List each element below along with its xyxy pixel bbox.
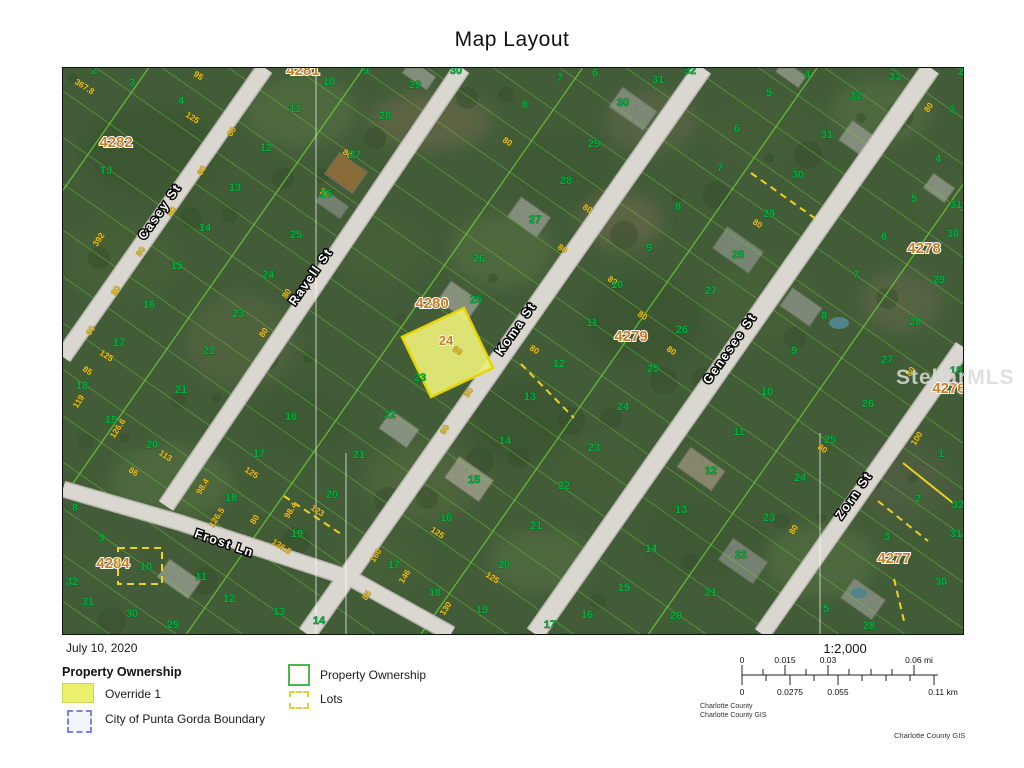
lot-number-label: 18 — [225, 492, 237, 504]
lot-number-label: 32 — [66, 576, 78, 588]
lot-number-label: 12 — [705, 465, 717, 477]
lot-number-label: 11 — [195, 571, 207, 583]
lot-number-label: 4 — [178, 95, 185, 107]
lot-number-label: 23 — [763, 512, 775, 524]
scale-km-2: 0.055 — [827, 687, 849, 697]
lot-number-label: 30 — [947, 228, 959, 240]
lot-number-label: 28 — [379, 110, 391, 122]
block-number-label: 4280 — [415, 295, 448, 312]
scale-mi-3: 0.06 mi — [905, 655, 933, 665]
lot-number-label: 23 — [414, 372, 426, 384]
lot-number-label: 17 — [253, 448, 265, 460]
lot-number-label: 27 — [705, 285, 717, 297]
lot-number-label: 25 — [470, 294, 482, 306]
lot-number-label: 11 — [289, 103, 301, 115]
lot-number-label: TJ — [100, 165, 113, 177]
lot-number-label: 15 — [468, 474, 480, 486]
lot-number-label: 8 — [72, 502, 78, 514]
ownership-swatch — [288, 664, 310, 686]
lot-number-label: 9 — [363, 68, 369, 77]
scale-km-0: 0 — [740, 687, 745, 697]
lot-number-label: 10 — [761, 386, 773, 398]
lot-number-label: 10 — [140, 561, 152, 573]
lot-number-label: 28 — [863, 620, 875, 632]
lot-number-label: 31 — [950, 199, 962, 211]
parcel-map: 42824281428042794278427642774284 24 367.… — [63, 68, 963, 634]
lot-number-label: 24 — [262, 269, 275, 281]
map-layout-page: Map Layout — [0, 0, 1024, 768]
lot-number-label: 9 — [646, 242, 652, 254]
lot-number-label: 16 — [581, 609, 593, 621]
lot-number-label: 12 — [553, 358, 565, 370]
lot-number-label: 31 — [82, 596, 94, 608]
scale-km-1: 0.0275 — [777, 687, 803, 697]
lot-number-label: 8 — [821, 310, 827, 322]
lot-number-label: 7 — [717, 162, 723, 174]
lot-number-label: 26 — [862, 398, 874, 410]
lot-number-label: 29 — [588, 138, 600, 150]
map-date: July 10, 2020 — [66, 641, 137, 655]
scale-mi-0: 0 — [740, 655, 745, 665]
legend-item-boundary: City of Punta Gorda Boundary — [105, 712, 265, 726]
lot-number-label: 16 — [143, 299, 155, 311]
lot-number-label: 8 — [522, 99, 528, 111]
lot-number-label: 18 — [76, 380, 88, 392]
lot-number-label: 23 — [232, 308, 244, 320]
lot-number-label: 17 — [113, 337, 125, 349]
lot-number-label: 16 — [440, 512, 452, 524]
lot-number-label: 4 — [935, 153, 942, 165]
scale-km-3: 0.11 km — [928, 687, 958, 697]
lot-number-label: 10 — [323, 76, 335, 88]
lot-number-label: 17 — [544, 619, 556, 631]
lot-number-label: 13 — [273, 606, 285, 618]
lot-number-label: 2 — [915, 493, 921, 505]
lot-number-label: 21 — [353, 449, 365, 461]
lot-number-label: 3 — [129, 77, 135, 89]
lot-number-label: 6 — [734, 123, 740, 135]
lot-number-label: 30 — [126, 608, 138, 620]
lot-number-label: 5 — [823, 603, 829, 615]
lot-number-label: 28 — [909, 316, 921, 328]
lot-number-label: 7 — [557, 72, 563, 84]
lot-number-label: 22 — [735, 549, 747, 561]
block-number-label: 4281 — [286, 68, 319, 79]
lot-number-label: 32 — [684, 68, 696, 77]
block-number-label: 4277 — [877, 550, 910, 567]
credit-line-1: Charlotte County — [700, 702, 767, 711]
lot-number-label: 23 — [588, 442, 600, 454]
lot-number-label: 31 — [821, 129, 833, 141]
lot-number-label: 22 — [384, 409, 396, 421]
lot-number-label: 19 — [291, 528, 303, 540]
lot-number-label: 9 — [791, 345, 797, 357]
lot-number-label: 29 — [763, 208, 775, 220]
lot-number-label: 27 — [881, 354, 893, 366]
credit-line-2: Charlotte County GIS — [700, 711, 767, 720]
lot-number-label: 29 — [933, 274, 945, 286]
scale-mi-2: 0.03 — [820, 655, 837, 665]
lot-number-label: 11 — [733, 426, 745, 438]
lot-number-label: 13 — [524, 391, 536, 403]
lot-number-label: 1 — [938, 448, 944, 460]
map-credits: Charlotte County Charlotte County GIS — [700, 702, 767, 720]
map-canvas: 42824281428042794278427642774284 24 367.… — [62, 67, 964, 635]
lot-number-label: 25 — [290, 229, 302, 241]
lot-number-label: 21 — [530, 520, 542, 532]
lot-number-label: 33 — [889, 71, 901, 83]
lot-number-label: 20 — [670, 610, 682, 622]
boundary-swatch — [67, 710, 92, 733]
lot-number-label: 8 — [675, 201, 681, 213]
lot-number-label: 25 — [647, 363, 659, 375]
lot-number-label: 12 — [260, 142, 272, 154]
lot-number-label: 30 — [792, 169, 804, 181]
lot-number-label: 31 — [652, 74, 664, 86]
block-number-label: 4278 — [907, 240, 940, 257]
lot-number-label: 17 — [388, 559, 400, 571]
lot-number-label: 21 — [175, 384, 187, 396]
highlight-lot-number: 24 — [439, 333, 454, 348]
scale-ratio: 1:2,000 — [735, 641, 955, 656]
lot-number-label: 15 — [618, 582, 630, 594]
lot-number-label: 13 — [229, 182, 241, 194]
lot-number-label: 19 — [476, 604, 488, 616]
lot-number-label: 27 — [529, 214, 541, 226]
lot-number-label: 20 — [498, 559, 510, 571]
page-title: Map Layout — [0, 28, 1024, 52]
lot-number-label: 25 — [824, 434, 836, 446]
lot-number-label: 30 — [617, 97, 629, 109]
override-swatch — [62, 683, 94, 703]
lot-number-label: 6 — [592, 68, 598, 79]
block-number-label: 4279 — [614, 328, 647, 345]
lot-number-label: 32 — [850, 90, 862, 102]
lot-number-label: 5 — [766, 87, 772, 99]
stellar-mls-watermark: StellarMLS — [896, 366, 1015, 390]
lot-number-label: 13 — [675, 504, 687, 516]
lot-number-label: 2 — [958, 68, 963, 78]
lot-number-label: 16 — [285, 411, 297, 423]
lot-number-label: 4 — [804, 69, 811, 81]
lot-number-label: 27 — [349, 149, 361, 161]
scale-mi-1: 0.015 — [774, 655, 796, 665]
lot-number-label: 30 — [450, 68, 462, 77]
lot-number-label: 15 — [171, 260, 183, 272]
page-attribution: Charlotte County GIS — [894, 731, 965, 740]
lot-number-label: 10 — [611, 279, 623, 291]
legend-item-ownership: Property Ownership — [320, 668, 426, 682]
lot-number-label: 14 — [499, 435, 512, 447]
lot-number-label: 26 — [320, 188, 332, 200]
legend-title: Property Ownership — [62, 665, 181, 679]
lot-number-label: 18 — [429, 587, 441, 599]
lot-number-label: 22 — [203, 345, 215, 357]
lot-number-label: 24 — [794, 472, 807, 484]
lot-number-label: 32 — [952, 499, 963, 511]
lot-number-label: 20 — [326, 489, 338, 501]
lot-number-label: 3 — [949, 104, 955, 116]
lot-number-label: 14 — [645, 543, 658, 555]
lot-number-label: 14 — [199, 222, 212, 234]
lot-number-label: 19 — [105, 414, 117, 426]
lot-number-label: 28 — [560, 175, 572, 187]
lot-number-label: 28 — [732, 249, 744, 261]
lot-number-label: 14 — [313, 615, 326, 627]
lot-number-label: 26 — [676, 324, 688, 336]
lot-number-label: 29 — [167, 619, 179, 631]
lot-number-label: 24 — [617, 401, 630, 413]
lots-swatch — [289, 691, 309, 709]
legend-item-lots: Lots — [320, 692, 343, 706]
block-number-label: 4282 — [99, 134, 132, 151]
lot-number-label: 20 — [146, 439, 158, 451]
lot-number-label: 2 — [91, 68, 97, 77]
scale-bar: 0 0.015 0.03 0.06 mi 0 0.0275 0.055 0.11… — [733, 655, 968, 699]
lot-number-label: 31 — [950, 528, 962, 540]
lot-number-label: 30 — [935, 576, 947, 588]
lot-number-label: 9 — [99, 532, 105, 544]
lot-number-label: 21 — [705, 587, 717, 599]
lot-number-label: 29 — [409, 79, 421, 91]
lot-number-label: 5 — [911, 193, 917, 205]
lot-number-label: 6 — [881, 231, 887, 243]
lot-number-label: 3 — [884, 531, 890, 543]
lot-number-label: 26 — [473, 253, 485, 265]
block-number-label: 4284 — [96, 555, 130, 572]
legend-item-override: Override 1 — [105, 687, 161, 701]
lot-number-label: 7 — [853, 269, 859, 281]
lot-number-label: 11 — [586, 317, 598, 329]
lot-number-label: 12 — [223, 593, 235, 605]
lot-number-label: 22 — [558, 480, 570, 492]
